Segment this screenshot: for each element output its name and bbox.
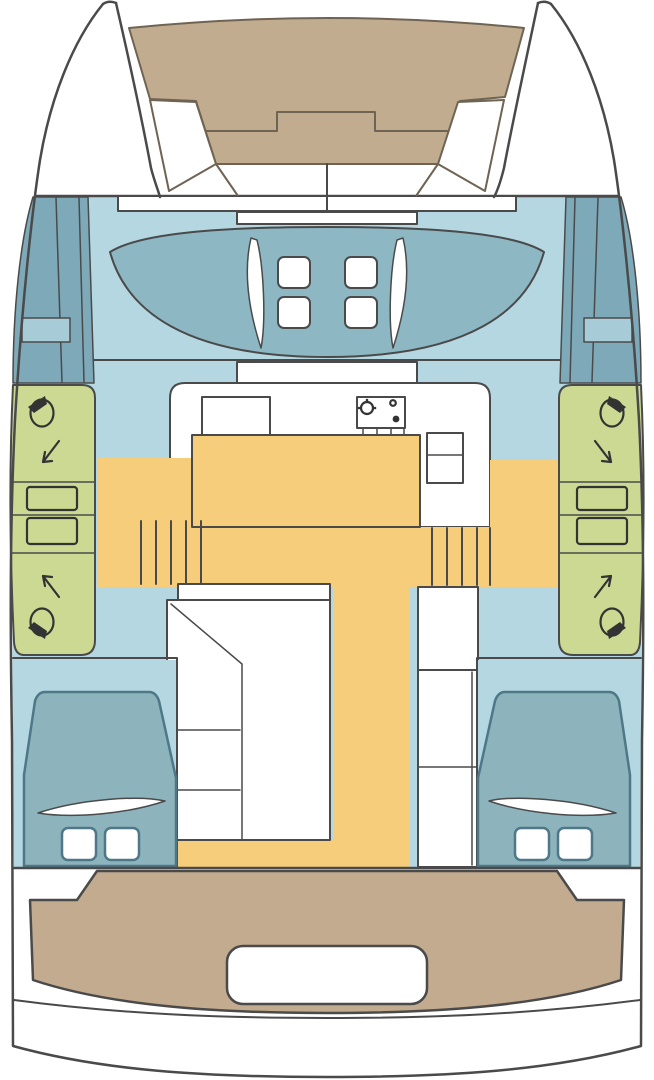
stove-burner-dot (358, 407, 361, 410)
dinette-area (192, 435, 420, 527)
cockpit-table (227, 946, 427, 1004)
starboard-wardrobe-column (418, 670, 478, 867)
stove-burner-dot (374, 407, 377, 410)
crossbeam-band (118, 196, 516, 211)
starboard-galley-module (418, 587, 478, 670)
starboard-double-bed (478, 692, 630, 866)
aft-corridor-floor (333, 586, 410, 868)
port-shelf-bar (178, 584, 330, 601)
starboard-deck-hatch (584, 318, 632, 342)
port-double-bed (24, 692, 176, 866)
foredeck-door (237, 212, 417, 224)
floor-plan-svg (0, 0, 654, 1080)
starboard-heads-group (559, 385, 644, 655)
bow-tip-caps (103, 2, 551, 4)
pillow (558, 828, 592, 860)
port-deck-hatch (22, 318, 70, 342)
stove-burner-icon (393, 416, 400, 423)
catamaran-deck-plan (0, 0, 654, 1080)
galley-sink (202, 397, 270, 435)
stove-burner-dot (366, 399, 369, 402)
pillow (515, 828, 549, 860)
fridge (427, 433, 463, 483)
pillow (62, 828, 96, 860)
forward-hatch (278, 297, 310, 328)
port-berth-block (167, 600, 330, 840)
port-heads-group (10, 385, 95, 655)
forward-hatch (345, 297, 377, 328)
salon-floor-aft-band (97, 527, 557, 587)
port-aft-floor-patch (167, 840, 333, 868)
pillow (105, 828, 139, 860)
salon-floor-starboard-band (490, 460, 557, 528)
aft-cockpit-group (30, 871, 624, 1013)
trampoline-group (129, 18, 524, 211)
forward-hatch (345, 257, 377, 288)
salon-front-door (237, 362, 417, 383)
forward-hatch (278, 257, 310, 288)
